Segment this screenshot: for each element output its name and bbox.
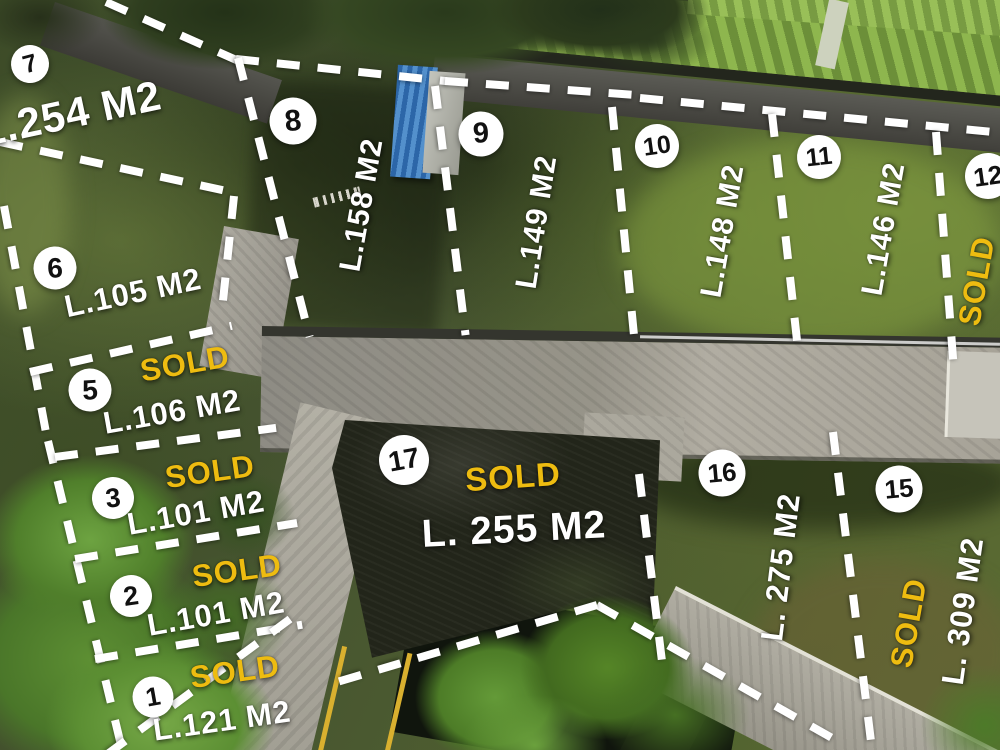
- plot-number: 5: [81, 374, 98, 407]
- plot-number: 1: [143, 680, 163, 713]
- tree-canopy: [585, 5, 715, 75]
- plot-number: 9: [472, 117, 490, 151]
- plot-number: 17: [386, 442, 422, 479]
- plot-number: 16: [706, 456, 738, 489]
- plot17-sold-label: SOLD: [464, 455, 562, 500]
- plot-number: 3: [104, 482, 122, 514]
- plot-number: 12: [972, 159, 1000, 194]
- aerial-land-plot-map: 7 8 9 10 11 12 6 5 3 2 1 17 16 15 L.254 …: [0, 0, 1000, 750]
- plot-number: 2: [121, 580, 140, 613]
- road-end-slab: [945, 351, 1000, 439]
- plot-number: 10: [641, 130, 673, 163]
- plot-number: 15: [883, 472, 915, 505]
- plot-number: 8: [283, 103, 303, 138]
- plot-number: 6: [46, 252, 63, 285]
- plot-number: 11: [804, 141, 833, 173]
- plot-number: 7: [20, 48, 41, 80]
